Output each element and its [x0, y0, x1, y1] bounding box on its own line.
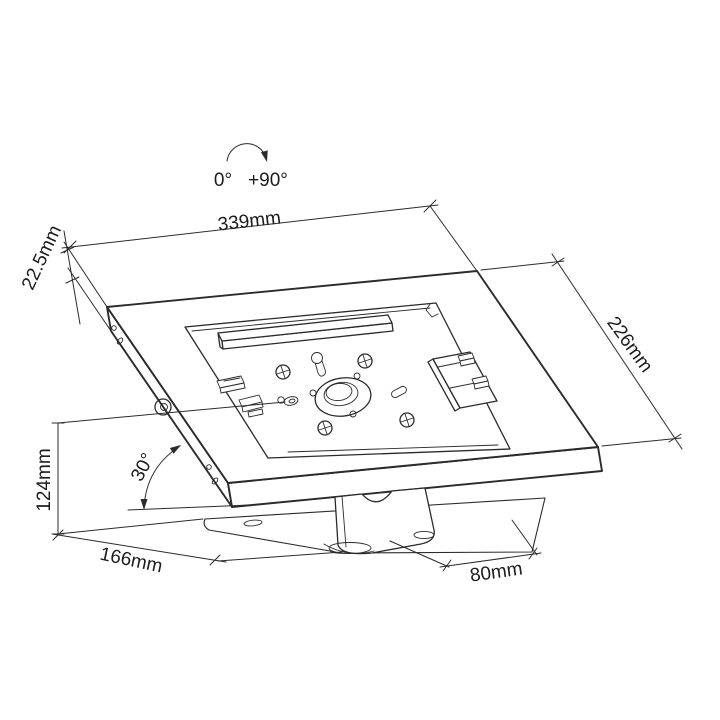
rotation-end-label: +90°: [248, 170, 288, 191]
dim-stand-height-label: 124mm: [34, 448, 55, 511]
dim-base-width-label: 80mm: [469, 558, 524, 586]
dimension-edge-thickness: 22.5mm: [18, 222, 111, 331]
dim-tilt-angle-label: 30°: [127, 450, 159, 485]
dim-edge-thickness-label: 22.5mm: [18, 222, 66, 293]
dim-side-depth-label: 226mm: [602, 313, 656, 377]
tablet-enclosure: [107, 271, 602, 507]
stand-column-outline: [335, 488, 434, 554]
dim-base-depth-label: 166mm: [98, 544, 164, 578]
dimension-drawing-page: 0° +90° 339mm 22.5mm 226mm 124mm: [0, 0, 720, 720]
stand-column: [324, 488, 434, 554]
rotation-indicator: 0° +90°: [214, 144, 288, 191]
rotation-arrow-icon: [227, 144, 266, 161]
rotation-start-label: 0°: [214, 170, 232, 191]
dim-top-width-label: 339mm: [217, 208, 282, 236]
tablet-stand-dimension-drawing: 0° +90° 339mm 22.5mm 226mm 124mm: [0, 0, 720, 720]
